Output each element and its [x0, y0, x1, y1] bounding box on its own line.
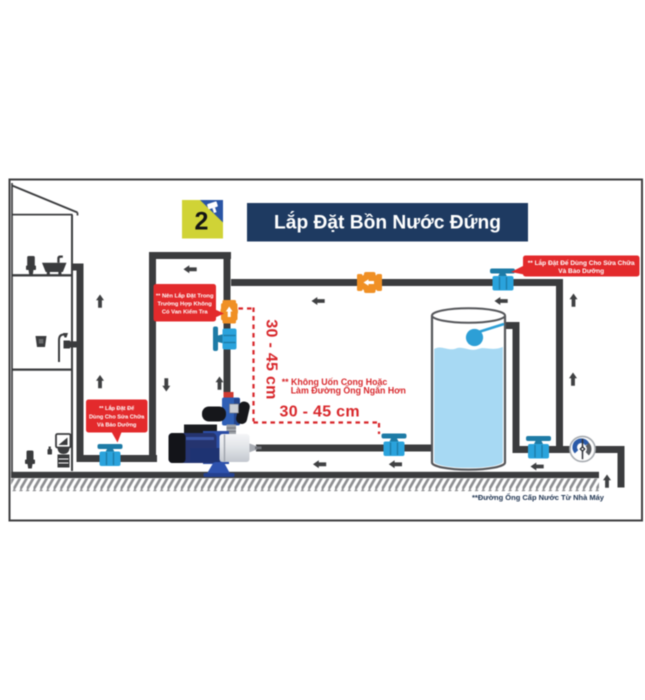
svg-text:Lắp Đặt Bồn Nước Đứng: Lắp Đặt Bồn Nước Đứng: [274, 212, 501, 234]
svg-text:**Đường Ống Cấp Nước Từ Nhà Má: **Đường Ống Cấp Nước Từ Nhà Máy: [472, 492, 605, 502]
svg-text:** Nên Lắp Đặt Trong: ** Nên Lắp Đặt Trong: [156, 293, 214, 300]
svg-text:Trường Hợp Không: Trường Hợp Không: [158, 302, 213, 308]
svg-text:Có Van Kiểm Tra: Có Van Kiểm Tra: [162, 309, 209, 316]
svg-text:30 - 45 cm: 30 - 45 cm: [263, 319, 280, 399]
svg-text:Và Bảo Dưỡng: Và Bảo Dưỡng: [97, 423, 137, 429]
svg-text:Dùng Cho Sửa Chữa: Dùng Cho Sửa Chữa: [89, 414, 145, 420]
svg-text:Làm Đường Ống Ngắn Hơn: Làm Đường Ống Ngắn Hơn: [291, 385, 406, 396]
svg-text:** Lắp Đặt Để: ** Lắp Đặt Để: [99, 405, 134, 412]
svg-text:** Lắp Đặt Để Dùng Cho Sửa Chữ: ** Lắp Đặt Để Dùng Cho Sửa Chữa: [528, 258, 635, 267]
svg-text:30 - 45 cm: 30 - 45 cm: [280, 404, 360, 421]
svg-text:2: 2: [195, 207, 209, 235]
svg-text:Và Bảo Dưỡng: Và Bảo Dưỡng: [558, 268, 604, 275]
